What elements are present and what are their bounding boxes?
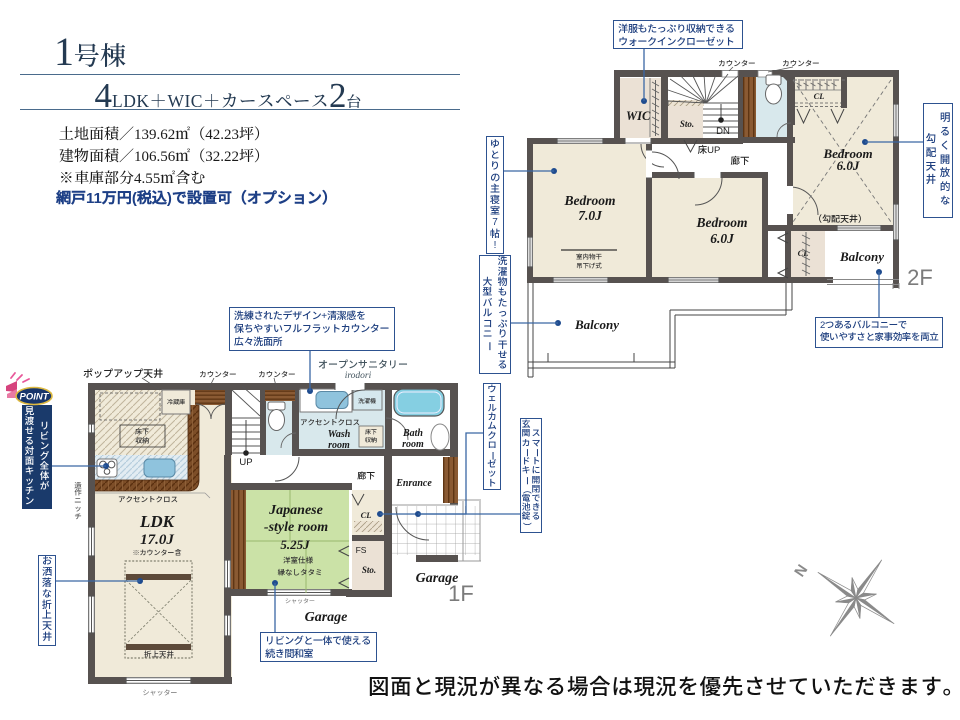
svg-text:廊下: 廊下	[730, 156, 749, 167]
svg-text:DN: DN	[716, 126, 730, 137]
svg-text:床下: 床下	[365, 429, 377, 436]
svg-text:シャッター: シャッター	[143, 689, 178, 697]
svg-text:アクセントクロス: アクセントクロス	[300, 418, 360, 427]
svg-text:収納: 収納	[135, 437, 149, 445]
svg-text:（勾配天井）: （勾配天井）	[813, 213, 867, 224]
svg-text:カウンター: カウンター	[258, 370, 296, 379]
svg-text:N: N	[791, 562, 811, 580]
svg-text:カウンター: カウンター	[782, 59, 820, 68]
svg-text:収納: 収納	[364, 436, 377, 444]
svg-text:Sto.: Sto.	[680, 119, 694, 129]
svg-text:Wash: Wash	[328, 429, 351, 440]
svg-text:Balcony: Balcony	[839, 249, 884, 264]
svg-text:LDK: LDK	[139, 512, 176, 531]
svg-text:irodori: irodori	[345, 371, 372, 381]
svg-text:洗濯機: 洗濯機	[358, 397, 376, 405]
svg-text:Bedroom: Bedroom	[695, 215, 747, 230]
svg-text:6.0J: 6.0J	[837, 158, 860, 173]
svg-text:CL: CL	[361, 510, 372, 520]
svg-text:Sto.: Sto.	[362, 565, 376, 575]
svg-text:カウンター: カウンター	[718, 59, 756, 68]
svg-text:FS: FS	[356, 545, 367, 555]
svg-text:洋室仕様: 洋室仕様	[283, 556, 313, 565]
svg-text:床UP: 床UP	[698, 145, 721, 156]
svg-text:room: room	[328, 440, 350, 451]
svg-text:7.0J: 7.0J	[578, 208, 603, 223]
svg-text:Garage: Garage	[305, 610, 348, 625]
svg-text:ポップアップ天井: ポップアップ天井	[83, 368, 164, 380]
svg-text:Balcony: Balcony	[574, 317, 619, 332]
svg-text:room: room	[402, 439, 424, 450]
svg-text:カウンター: カウンター	[199, 370, 237, 379]
svg-text:WIC: WIC	[626, 109, 651, 123]
svg-text:17.0J: 17.0J	[140, 532, 174, 548]
svg-text:5.25J: 5.25J	[280, 537, 310, 552]
svg-text:※カウンター含: ※カウンター含	[133, 549, 182, 557]
svg-text:CL: CL	[814, 91, 825, 101]
svg-text:POINT: POINT	[19, 392, 49, 403]
svg-text:吊下げ式: 吊下げ式	[576, 262, 602, 270]
svg-text:冷蔵庫: 冷蔵庫	[167, 399, 185, 406]
svg-text:UP: UP	[239, 457, 252, 468]
svg-text:折上天井: 折上天井	[144, 650, 174, 659]
svg-text:床下: 床下	[135, 428, 149, 436]
svg-text:6.0J: 6.0J	[710, 231, 735, 246]
svg-text:アクセントクロス: アクセントクロス	[118, 495, 178, 504]
svg-text:廊下: 廊下	[357, 471, 375, 481]
svg-text:オープンサニタリー: オープンサニタリー	[318, 359, 408, 371]
svg-text:縁なしタタミ: 縁なしタタミ	[278, 568, 323, 577]
svg-text:シャッター: シャッター	[285, 598, 315, 605]
svg-text:Bath: Bath	[402, 428, 423, 439]
svg-text:2F: 2F	[907, 265, 933, 290]
svg-text:Bedroom: Bedroom	[563, 193, 615, 208]
svg-text:Japanese: Japanese	[268, 503, 323, 518]
svg-text:室内物干: 室内物干	[576, 253, 603, 261]
svg-text:-style room: -style room	[264, 520, 328, 535]
svg-text:Enrance: Enrance	[395, 478, 432, 489]
svg-text:1F: 1F	[448, 581, 474, 606]
